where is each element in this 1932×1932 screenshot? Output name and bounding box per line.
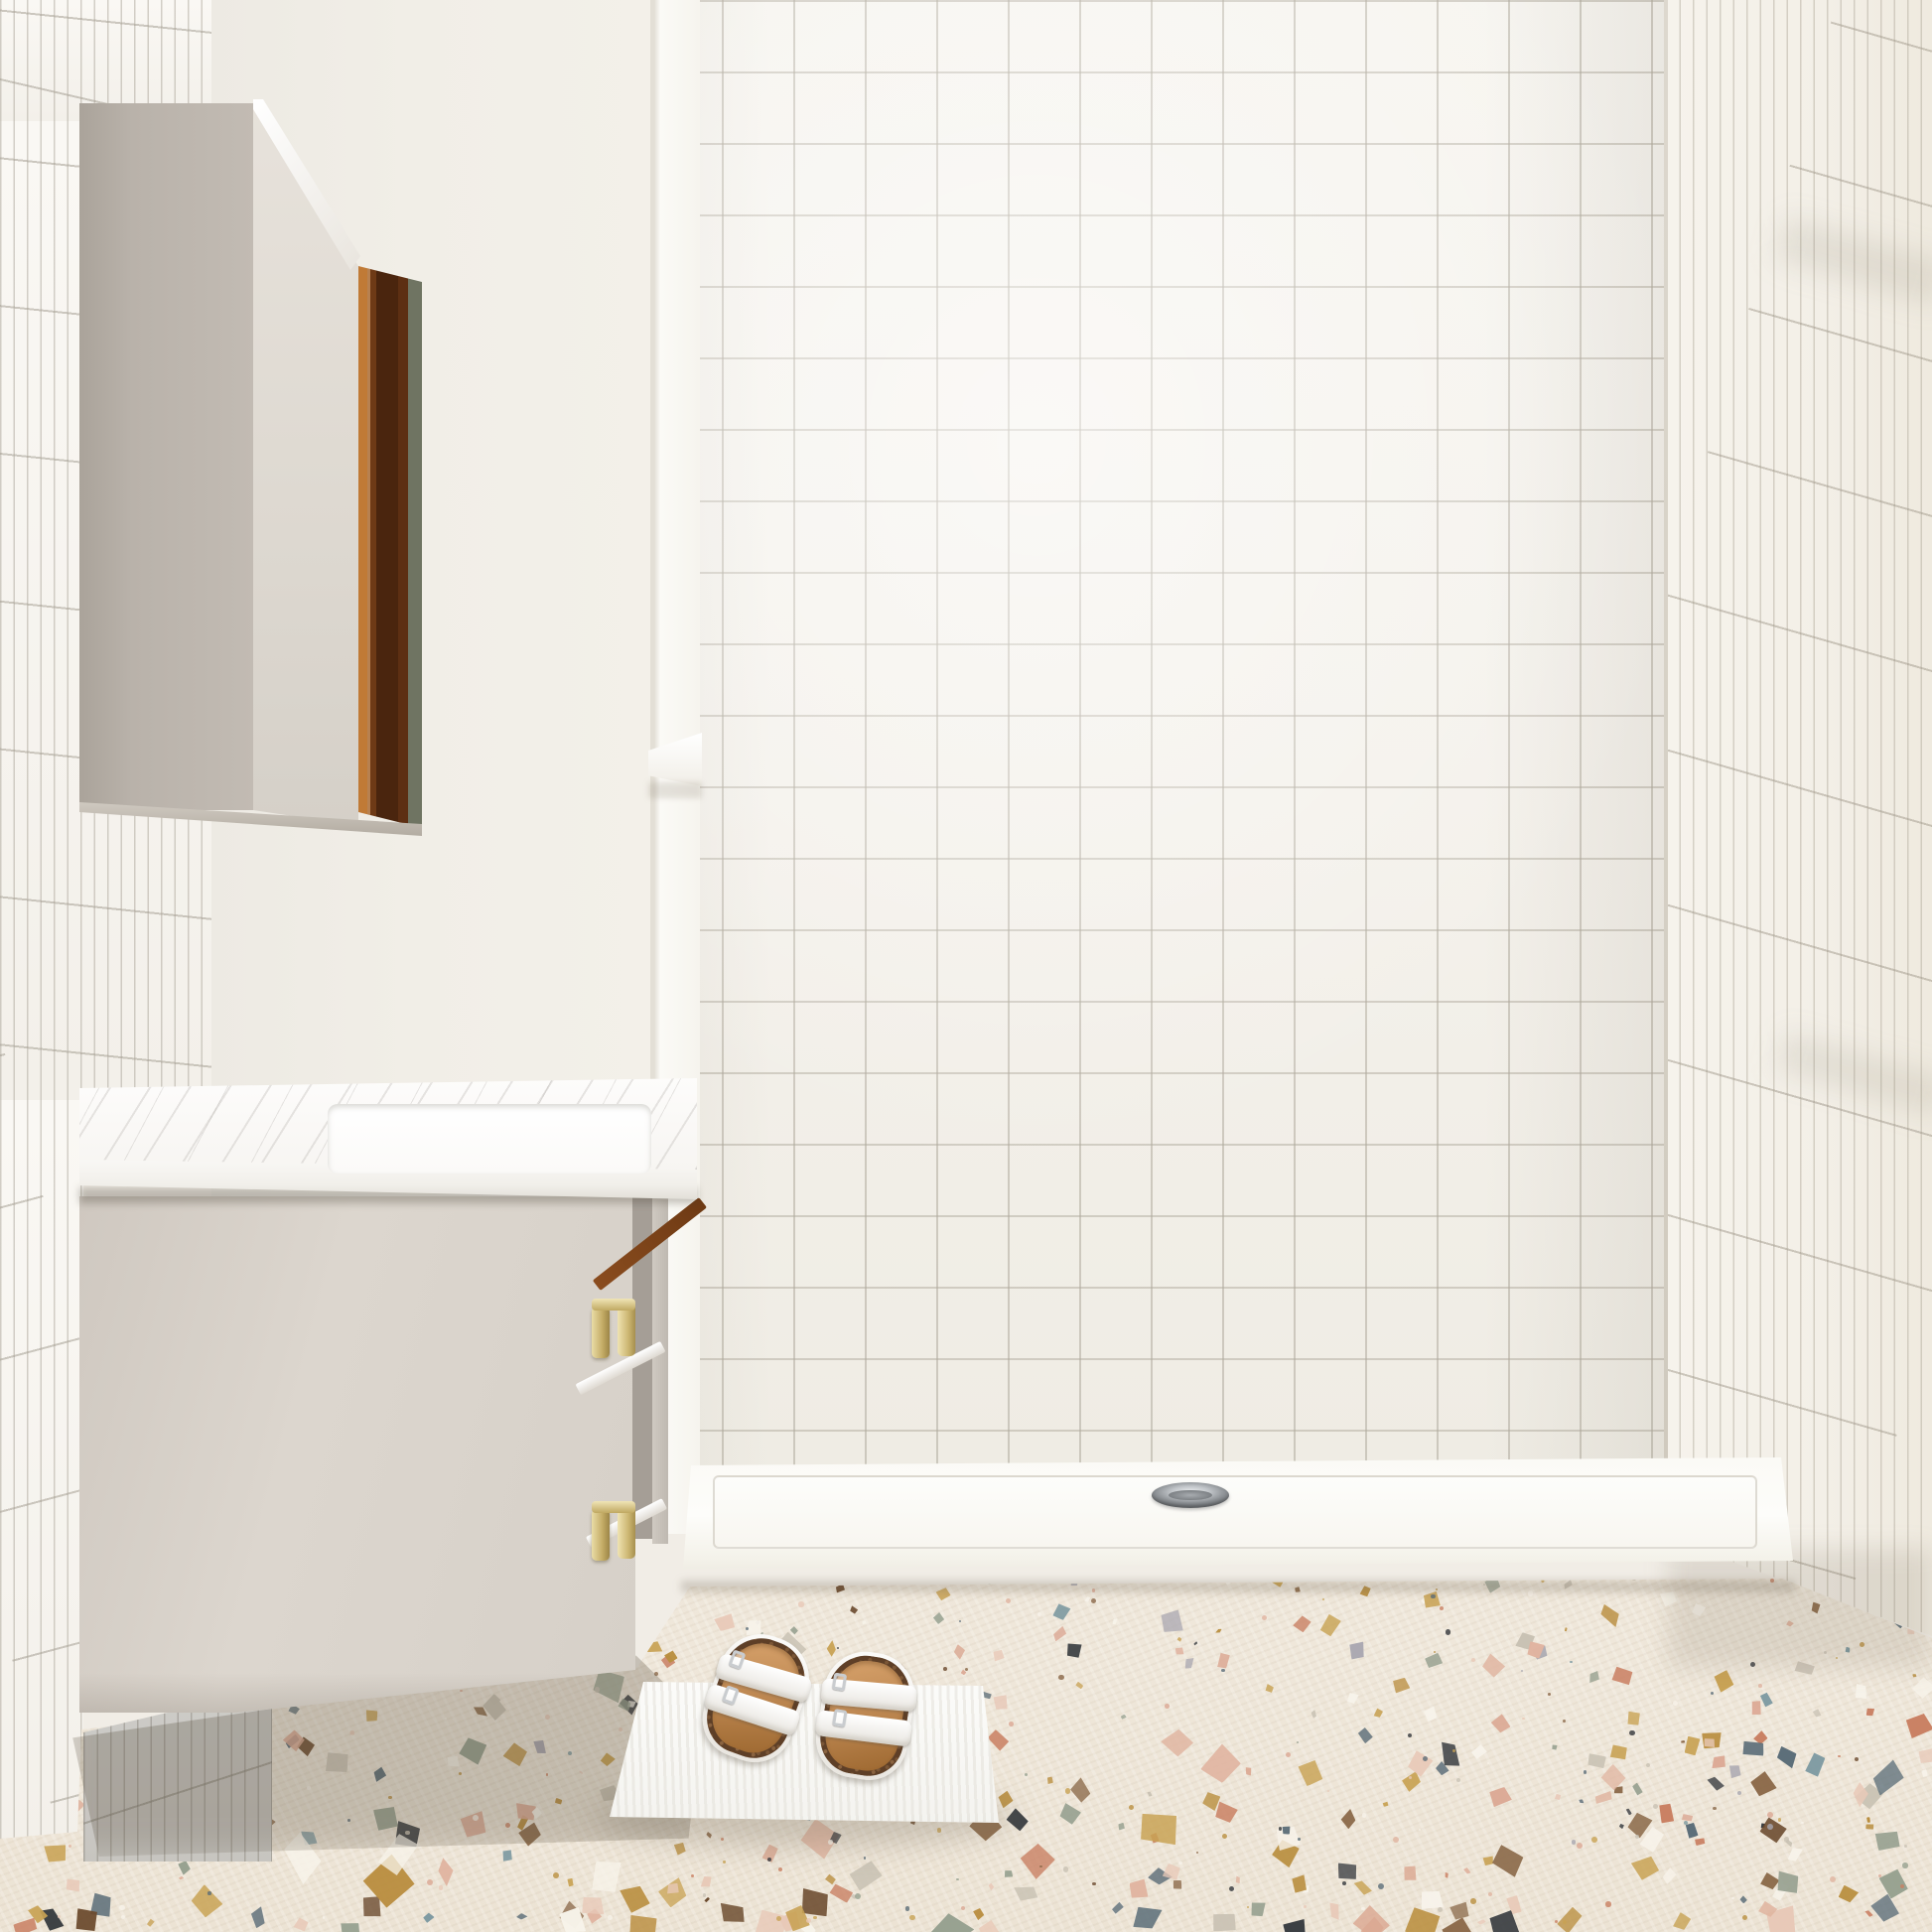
screen-frame [0,0,1932,1932]
screen-bar-stile-va [1580,290,1596,1177]
screen-bar-top-rail-h1 [1191,139,1779,156]
screen-bar-rail-h4-partial [1191,934,1596,951]
screen-bar-bottom-rail-h6 [1191,1384,1779,1401]
screen-bar-stile-vc [1336,1161,1353,1401]
screen-bar-rail-h3-partial [1191,496,1593,513]
screen-bar-rail-hmid-partial [1373,758,1779,774]
screen-bar-left-stile [1191,139,1208,1553]
screen-bar-stile-vb [1373,496,1390,951]
bathroom-scene [0,0,1932,1932]
screen-bar-rail-h5-partial [1336,1161,1779,1177]
screen-bar-rail-h2 [1191,290,1779,307]
